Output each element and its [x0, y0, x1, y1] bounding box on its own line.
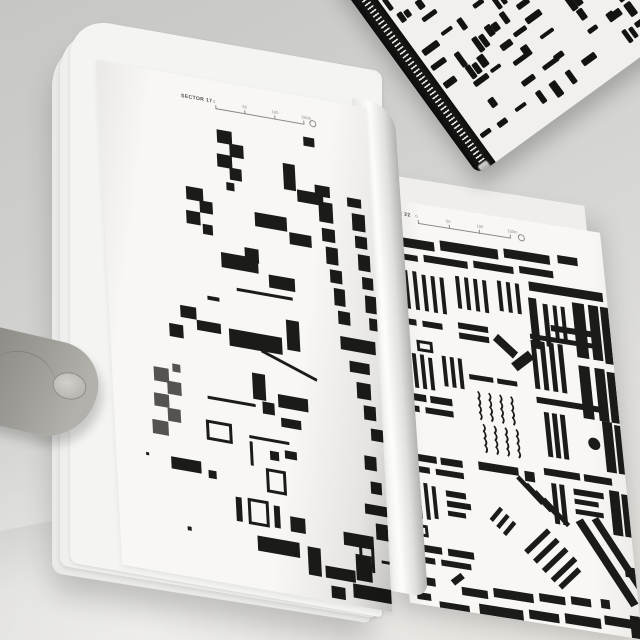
fabric-dash	[514, 101, 527, 112]
fabric-dash	[535, 89, 548, 104]
fabric-dash	[581, 52, 597, 67]
fabric-dash	[539, 27, 554, 40]
fabric-dash	[548, 80, 564, 98]
fabric-dash	[443, 75, 458, 88]
fabric-dash	[487, 97, 499, 109]
fabric-dash	[499, 39, 513, 52]
fabric-dash	[472, 0, 486, 10]
fabric-dash	[498, 10, 511, 24]
fabric-dash	[497, 117, 509, 128]
fabric-dash	[421, 9, 437, 23]
fabric-dash	[633, 13, 640, 28]
page-shading	[96, 60, 392, 612]
fabric-dash	[489, 63, 502, 74]
photo-scene: SECTOR 22050100150m SECTOR 17050100150m	[0, 0, 640, 640]
zipper-ring	[489, 162, 500, 173]
fabric-dash	[525, 9, 543, 25]
fabric-dash	[520, 73, 536, 87]
fabric-dash	[576, 7, 589, 21]
book-left-page: SECTOR 17050100150m	[96, 60, 392, 612]
fabric-dash	[512, 25, 527, 37]
fabric-dash	[440, 25, 453, 36]
fabric-dash	[623, 1, 638, 18]
fabric-dash	[564, 69, 578, 85]
fabric-dash	[479, 127, 492, 139]
fabric-dash	[430, 56, 448, 72]
fabric-dash	[414, 0, 425, 10]
fabric-dash	[586, 24, 598, 35]
thumb-nail	[50, 369, 89, 403]
fabric-dash	[421, 40, 440, 56]
fabric-dash	[515, 0, 530, 10]
fabric-dash	[456, 17, 469, 31]
